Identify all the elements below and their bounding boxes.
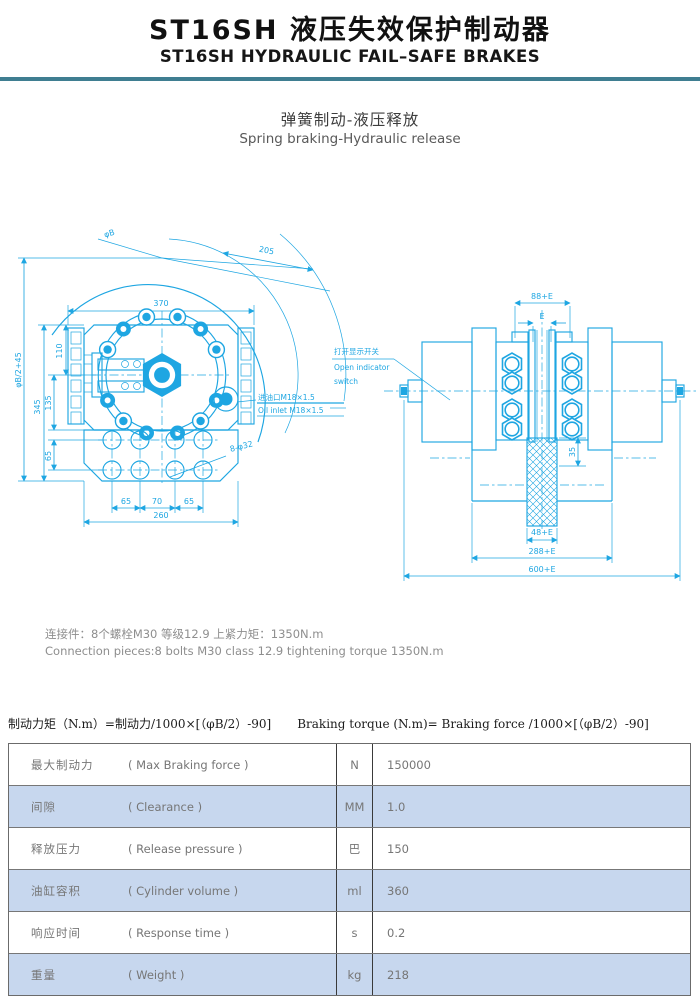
spec-unit: 巴 [336, 828, 373, 869]
spec-value: 218 [373, 954, 690, 995]
braking-torque-formula: 制动力矩（N.m）=制动力/1000×[（φB/2）-90]Braking to… [8, 715, 649, 732]
page-title-en: ST16SH HYDRAULIC FAIL–SAFE BRAKES [0, 47, 700, 66]
switch-label-zh: 打开显示开关 [334, 346, 379, 356]
spec-label-en: ( Cylinder volume ) [128, 870, 336, 911]
dim-260: 260 [153, 511, 168, 520]
spec-row: 释放压力( Release pressure )巴150 [9, 828, 690, 870]
spec-label-zh: 油缸容积 [9, 870, 128, 911]
spec-label-zh: 重量 [9, 954, 128, 995]
spec-label-zh: 释放压力 [9, 828, 128, 869]
dim-135: 135 [44, 395, 53, 410]
spec-label-en: ( Clearance ) [128, 786, 336, 827]
section-subtitle-en: Spring braking-Hydraulic release [0, 131, 700, 147]
accent-divider [0, 77, 700, 81]
dim-288e: 288+E [528, 547, 555, 556]
spec-unit: kg [336, 954, 373, 995]
dim-35: 35 [568, 447, 577, 457]
side-view-drawing: 打开显示开关 Open indicator switch 88+E E 35 [330, 280, 700, 590]
connection-notes: 连接件：8个螺栓M30 等级12.9 上紧力矩：1350N.m Connecti… [45, 626, 444, 660]
spec-value: 150000 [373, 744, 690, 785]
dim-65-right: 65 [184, 497, 194, 506]
spec-row: 最大制动力( Max Braking force )N150000 [9, 744, 690, 786]
spec-label-en: ( Release pressure ) [128, 828, 336, 869]
page: { "header": { "title_zh": "ST16SH 液压失效保护… [0, 0, 700, 1005]
spec-label-zh: 间隙 [9, 786, 128, 827]
spec-row: 重量( Weight )kg218 [9, 954, 690, 995]
spec-label-en: ( Response time ) [128, 912, 336, 953]
switch-label-en1: Open indicator [334, 363, 390, 372]
spec-table: 最大制动力( Max Braking force )N150000间隙( Cle… [8, 743, 691, 996]
oil-inlet-label-en: Oil inlet M18×1.5 [258, 406, 324, 415]
dim-phi-b: φB [103, 228, 116, 240]
dim-600e: 600+E [528, 565, 555, 574]
connection-note-en: Connection pieces:8 bolts M30 class 12.9… [45, 643, 444, 660]
spec-unit: N [336, 744, 373, 785]
dim-phi-b2-45: φB/2+45 [14, 352, 23, 387]
spec-unit: MM [336, 786, 373, 827]
dim-8-holes: 8-φ32 [229, 439, 254, 453]
spec-value: 360 [373, 870, 690, 911]
formula-zh: 制动力矩（N.m）=制动力/1000×[（φB/2）-90] [8, 717, 271, 731]
dim-65-left: 65 [121, 497, 131, 506]
spec-value: 1.0 [373, 786, 690, 827]
spec-row: 响应时间( Response time )s0.2 [9, 912, 690, 954]
connection-note-zh: 连接件：8个螺栓M30 等级12.9 上紧力矩：1350N.m [45, 626, 444, 643]
dim-48e: 48+E [531, 528, 553, 537]
spec-label-en: ( Max Braking force ) [128, 744, 336, 785]
dim-70: 70 [152, 497, 162, 506]
center-hex-nut [143, 353, 181, 397]
dim-88e: 88+E [531, 292, 553, 301]
spec-label-en: ( Weight ) [128, 954, 336, 995]
spec-row: 间隙( Clearance )MM1.0 [9, 786, 690, 828]
spec-value: 150 [373, 828, 690, 869]
front-view-drawing: φB 205 370 进油口M18×1.5 Oil inlet M18×1.5 … [10, 225, 360, 570]
spec-unit: s [336, 912, 373, 953]
dim-65-vertical: 65 [44, 451, 53, 461]
page-title-zh: ST16SH 液压失效保护制动器 [0, 8, 700, 47]
spec-row: 油缸容积( Cylinder volume )ml360 [9, 870, 690, 912]
oil-inlet-label-zh: 进油口M18×1.5 [258, 392, 315, 402]
switch-label-en2: switch [334, 377, 358, 386]
dim-110: 110 [55, 343, 64, 358]
spec-value: 0.2 [373, 912, 690, 953]
dim-345: 345 [33, 399, 42, 414]
spec-unit: ml [336, 870, 373, 911]
section-subtitle-zh: 弹簧制动-液压释放 [0, 108, 700, 130]
dim-370: 370 [153, 299, 168, 308]
dim-205: 205 [258, 245, 275, 257]
spec-label-zh: 最大制动力 [9, 744, 128, 785]
formula-en: Braking torque (N.m)= Braking force /100… [297, 717, 649, 731]
spec-label-zh: 响应时间 [9, 912, 128, 953]
